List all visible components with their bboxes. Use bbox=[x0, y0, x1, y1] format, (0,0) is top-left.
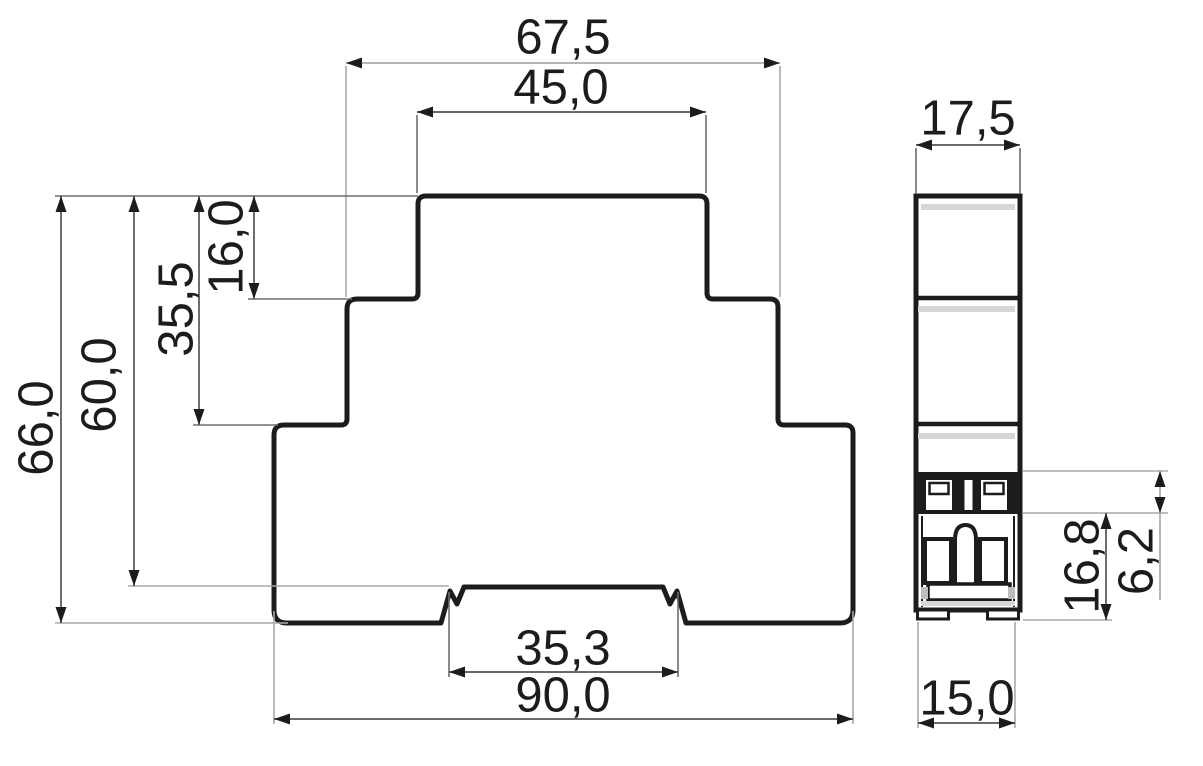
dim-label-height-66-0: 66,0 bbox=[13, 380, 62, 475]
dim-label-width-90-0: 90,0 bbox=[515, 672, 610, 721]
terminal-screw-left bbox=[930, 483, 949, 494]
clip-tab-right bbox=[1008, 587, 1015, 599]
clip-tab-left bbox=[921, 587, 928, 599]
accent-band-mid2 bbox=[918, 433, 1015, 439]
side-foot-left bbox=[918, 610, 949, 619]
terminal-center-slit bbox=[965, 480, 973, 510]
dim-label-height-35-5: 35,5 bbox=[153, 261, 202, 356]
terminal-screw-right bbox=[985, 483, 1004, 494]
side-foot-right bbox=[988, 610, 1019, 619]
dim-label-height-16-0: 16,0 bbox=[203, 199, 252, 294]
dim-label-width-45-0: 45,0 bbox=[513, 64, 608, 113]
dim-label-width-67-5: 67,5 bbox=[515, 14, 610, 63]
clip-pad-left bbox=[925, 539, 951, 583]
technical-drawing-canvas: 67,5 45,0 16,0 35,5 60,0 66,0 35,3 90,0 … bbox=[0, 0, 1203, 766]
clip-pad-right bbox=[980, 539, 1006, 583]
dim-label-terminal-6-2: 6,2 bbox=[1113, 527, 1162, 595]
dim-label-height-60-0: 60,0 bbox=[76, 337, 125, 432]
dim-label-clip-16-8: 16,8 bbox=[1059, 518, 1108, 613]
dim-label-width-17-5: 17,5 bbox=[920, 95, 1015, 144]
accent-band-mid1 bbox=[918, 306, 1015, 312]
side-view bbox=[916, 196, 1020, 619]
clip-slider-bar bbox=[928, 584, 1010, 600]
clip-arch-tab bbox=[955, 525, 976, 583]
dim-label-notch-35-3: 35,3 bbox=[515, 625, 610, 674]
accent-band-bottom bbox=[921, 601, 1015, 606]
accent-band-top bbox=[921, 204, 1015, 210]
front-view-profile bbox=[274, 196, 853, 623]
dim-label-bottom-15-0: 15,0 bbox=[919, 675, 1014, 724]
enclosure-outline bbox=[274, 196, 853, 623]
